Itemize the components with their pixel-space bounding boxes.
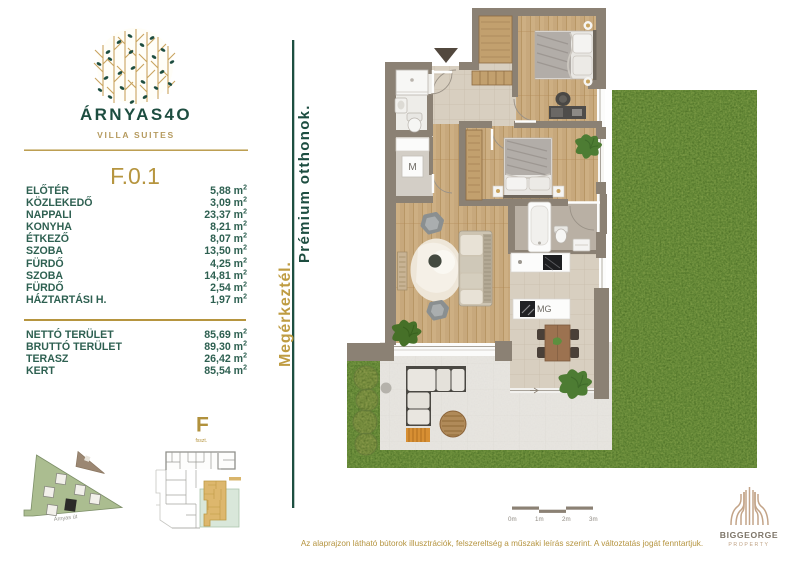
svg-text:fsszt.: fsszt. [196, 438, 208, 444]
svg-text:Árnyas út: Árnyas út [53, 513, 78, 523]
svg-text:0m: 0m [508, 516, 517, 523]
svg-text:1m: 1m [535, 516, 544, 523]
svg-text:2m: 2m [562, 516, 571, 523]
svg-text:BIGGEORGE: BIGGEORGE [720, 530, 778, 540]
svg-text:PROPERTY: PROPERTY [728, 542, 769, 548]
svg-text:3m: 3m [589, 516, 598, 523]
svg-text:F: F [196, 414, 209, 437]
